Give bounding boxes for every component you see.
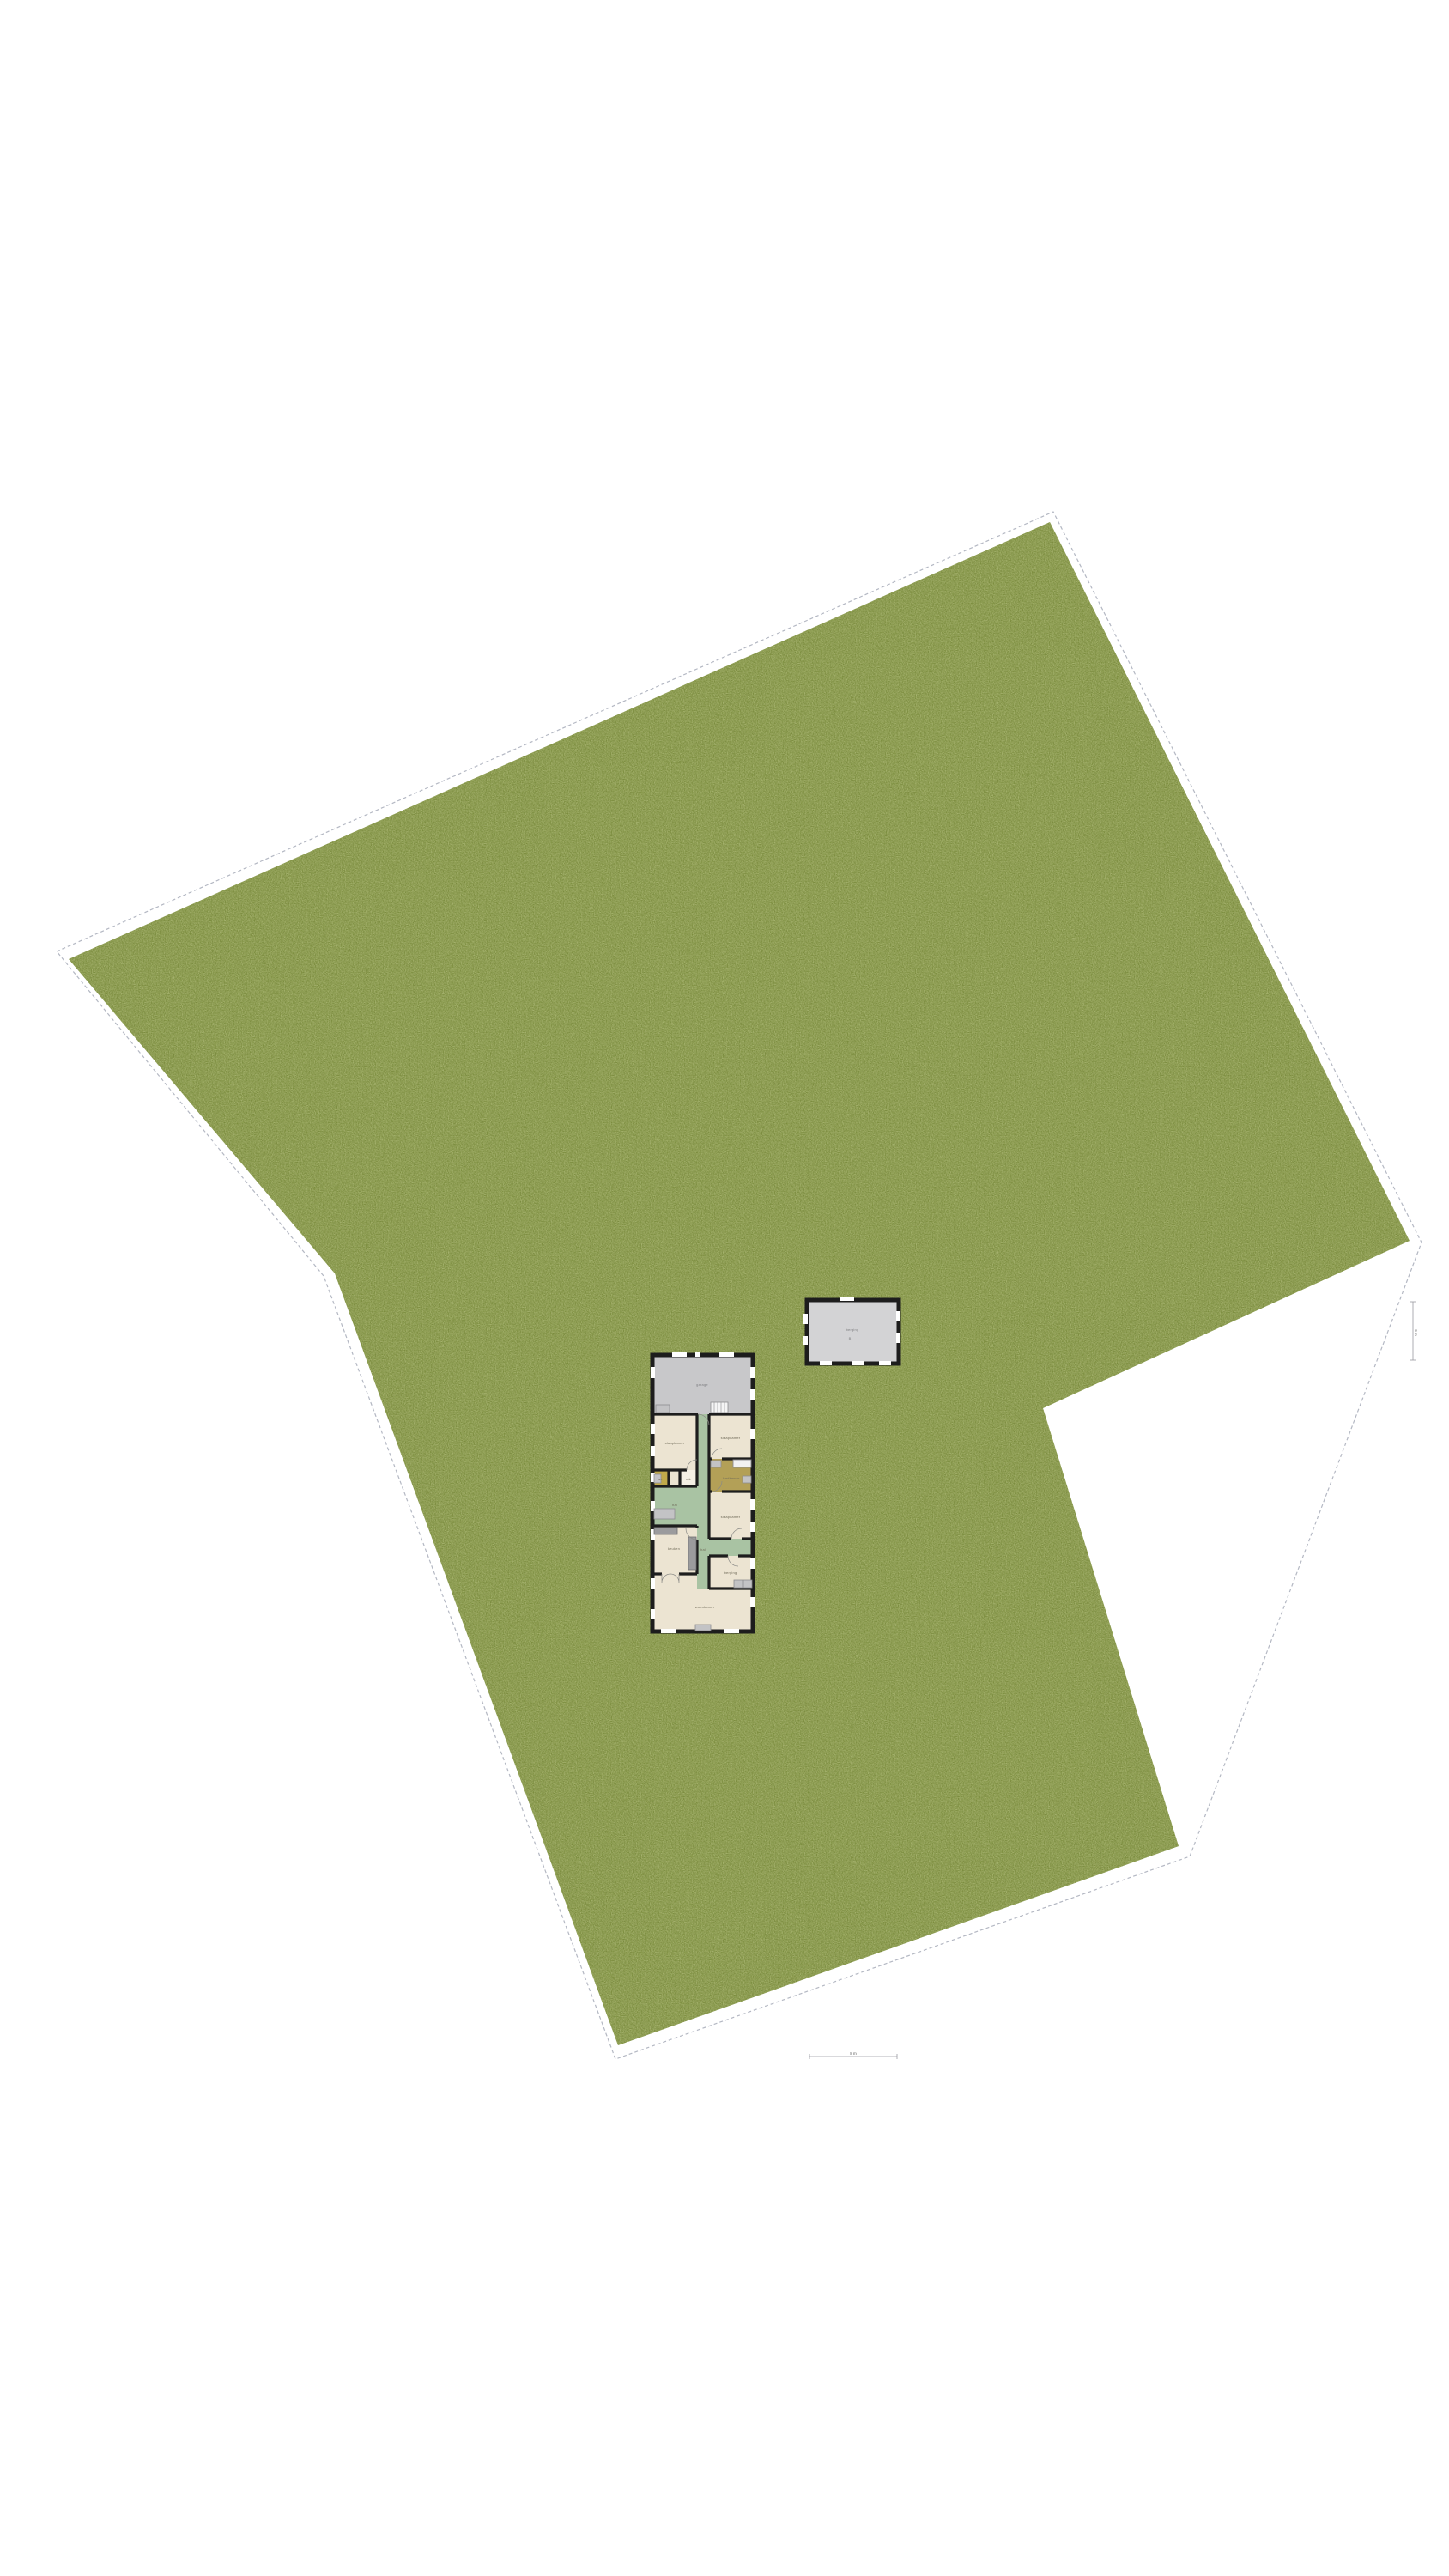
kitchen-counter-top — [654, 1528, 677, 1534]
room-label-hall2: hal — [700, 1547, 706, 1552]
storage-appliance — [734, 1580, 743, 1588]
room-label-kitchen: keuken — [668, 1546, 680, 1551]
room-label-storage: berging — [724, 1571, 737, 1575]
room-label-bathroom: badkamer — [723, 1476, 740, 1480]
shed-window — [896, 1311, 900, 1321]
shed-window — [803, 1336, 808, 1345]
house-floorplan: garage slaapkamer slaapkamer badkamer wc… — [651, 1352, 755, 1633]
room-label-hall: hal — [672, 1503, 677, 1507]
room-label-closet: mk — [686, 1477, 691, 1481]
bathroom-toilet — [743, 1476, 751, 1483]
hall-floor-main — [652, 1486, 709, 1526]
shed-outline — [807, 1300, 899, 1364]
hall-cabinet — [654, 1509, 675, 1519]
shed-window — [852, 1361, 864, 1365]
garage-appliance — [656, 1405, 670, 1413]
kitchen-counter-side — [688, 1537, 696, 1570]
shed-window — [879, 1361, 891, 1365]
shed-building: berging B — [803, 1297, 900, 1365]
shed-window — [803, 1314, 808, 1324]
room-label-living: woonkamer — [695, 1605, 715, 1609]
room-label-bedroom3: slaapkamer — [721, 1515, 741, 1519]
storage-appliance — [743, 1580, 752, 1588]
shed-letter: B — [849, 1336, 852, 1340]
room-label-bedroom2: slaapkamer — [721, 1436, 741, 1440]
shed-window — [840, 1297, 854, 1301]
site-plan-canvas: berging B — [0, 0, 1449, 2576]
shed-label: berging — [846, 1327, 859, 1332]
dimension-bottom-label: 8 m — [850, 2051, 857, 2056]
hall-floor-right — [709, 1539, 753, 1556]
stairs — [711, 1402, 728, 1413]
dimension-right-label: 6 m — [1414, 1329, 1418, 1336]
shed-window — [896, 1333, 900, 1343]
bathtub — [733, 1460, 751, 1467]
room-label-wc: wc — [658, 1477, 662, 1481]
shed-window — [820, 1361, 832, 1365]
room-label-garage: garage — [696, 1382, 708, 1387]
living-furniture — [695, 1625, 711, 1631]
bathroom-sink — [711, 1461, 721, 1467]
room-label-bedroom1: slaapkamer — [665, 1441, 685, 1445]
